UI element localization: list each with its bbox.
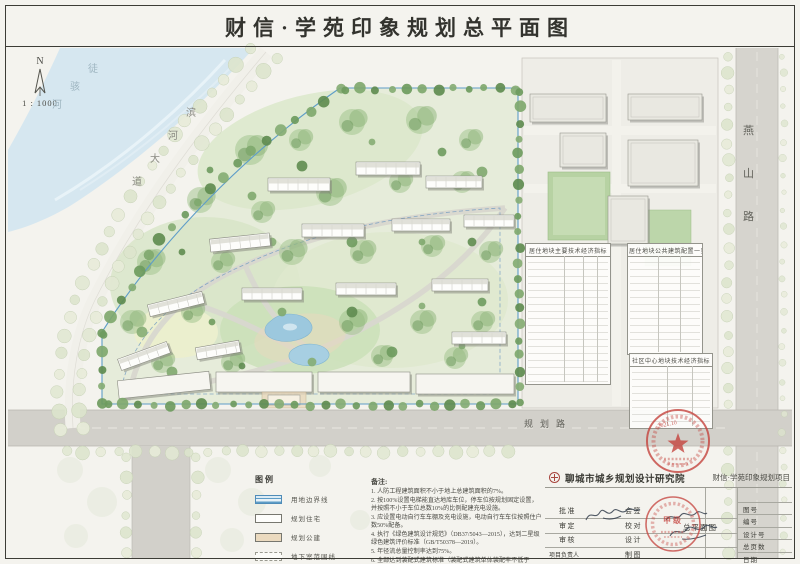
approval-stamp-seal: 2021.10 [640,402,716,480]
legend-item-label: 地下室范围线 [291,551,336,561]
titleblock-hline [737,514,792,515]
titleblock-vline [737,488,738,558]
note-item: 4. 执行《绿色建筑设计规范》（DB37/5043—2015），达到二星级绿色建… [371,531,543,547]
drawing-sheet: N 1 : 1000 徒骇河 滨河大道 规划路 燕山路 居住地块主要技术经济指标… [0,0,800,564]
titleblock-label-right: 总页数 [743,541,766,551]
north-label: N [22,56,58,67]
legend-item-label: 规划公建 [291,532,321,542]
note-item: 3. 应设置电动自行车车棚及充电设施，电动自行车车位按照住户数50%配备。 [371,514,543,530]
project-name: 财信·学苑印象规划项目 [713,472,793,483]
road-char: 骇 [70,78,80,93]
titleblock-label-right: 图号 [743,504,758,514]
certificate-stamp-seal: 甲级 [637,488,709,560]
legend-swatch-residential [255,514,282,523]
legend-item: 用地边界线 [255,494,336,504]
road-char: 滨 [186,104,196,119]
sheet-title: 财信·学苑印象规划总平面图 [0,12,800,42]
school-field [548,172,610,240]
note-item: 2. 按100%设置电梯能直达地库车位，停车位按规划固定设置，并按照不小于车位总… [371,497,543,513]
title-divider [6,46,794,47]
notes: 备注: 1. 人防工程建筑面积不小于地上总建筑面积的7%。2. 按100%设置电… [371,477,543,564]
stamp-grade-label: 甲级 [663,515,683,525]
titleblock-hline [737,502,792,503]
titleblock-hline [737,539,792,540]
table-body [630,256,700,352]
institute-logo-icon [549,472,560,483]
road-char: 徒 [88,60,98,75]
road-char: 大 [150,150,160,165]
titleblock-label-right: 日期 [743,554,758,564]
legend: 图例 用地边界线规划住宅规划公建地下室范围线 [255,474,336,561]
titleblock-label-right: 设计号 [743,529,766,539]
south-side-road [132,446,190,558]
titleblock-label-right: 编号 [743,516,758,526]
signature-shending [583,504,645,526]
legend-swatch-basement [255,552,282,561]
titleblock-label-left: 批准 [559,506,576,516]
road-char: 路 [743,208,754,224]
table-public-buildings: 居住地块公共建筑配置一览表 [627,243,703,355]
titleblock-hline [737,552,792,553]
legend-swatch-boundary [255,495,282,504]
legend-swatch-public [255,533,282,542]
legend-item: 规划公建 [255,532,336,542]
planned-road-label: 规划路 [524,417,572,430]
north-arrow-icon [32,67,48,97]
legend-items: 用地边界线规划住宅规划公建地下室范围线 [255,494,336,561]
note-item: 6. 全部达到装配式建筑标准（装配式建筑单体装配率不低于70%）。 [371,557,543,564]
stamp-date: 2021.10 [657,420,677,430]
legend-item-label: 规划住宅 [291,513,321,523]
legend-title: 图例 [255,474,336,485]
note-item: 5. 年径流总量控制率达到75%。 [371,548,543,556]
titleblock-label-left: 审核 [559,535,576,545]
titleblock-hline [737,527,792,528]
notes-list: 1. 人防工程建筑面积不小于地上总建筑面积的7%。2. 按100%设置电梯能直达… [371,488,543,564]
legend-item: 规划住宅 [255,513,336,523]
note-item: 1. 人防工程建筑面积不小于地上总建筑面积的7%。 [371,488,543,496]
road-char: 河 [168,127,178,142]
legend-item: 地下室范围线 [255,551,336,561]
titleblock-label-left: 审定 [559,521,576,531]
titleblock-label-left: 项目负责人 [549,550,579,559]
road-char: 河 [52,96,62,111]
road-char: 燕 [743,122,754,138]
yanshan-road-label: 燕山路 [743,122,754,224]
notes-title: 备注: [371,477,543,487]
main-entrance [262,392,306,408]
table-residential-indicators: 居住地块主要技术经济指标 [525,243,611,385]
road-char: 山 [743,165,754,181]
legend-item-label: 用地边界线 [291,494,329,504]
road-char: 道 [132,173,142,188]
